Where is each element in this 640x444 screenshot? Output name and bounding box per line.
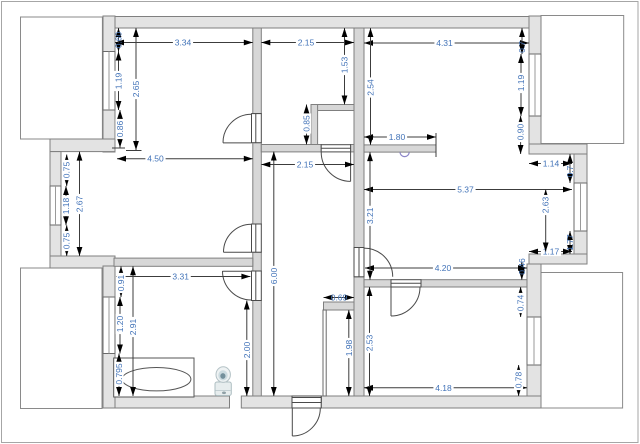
svg-text:3.31: 3.31 [172,272,189,282]
svg-text:3.21: 3.21 [365,207,375,224]
svg-text:2.67: 2.67 [75,195,85,212]
svg-text:0.85: 0.85 [302,115,312,132]
svg-text:0.7: 0.7 [565,165,575,177]
svg-text:1.14: 1.14 [543,159,560,169]
svg-text:6.00: 6.00 [269,267,279,284]
svg-text:5.37: 5.37 [457,185,474,195]
svg-text:3.34: 3.34 [175,38,192,48]
svg-text:4.31: 4.31 [436,38,453,48]
svg-text:2.00: 2.00 [242,341,252,358]
svg-text:0.78: 0.78 [514,371,524,388]
svg-text:0.75: 0.75 [62,232,72,249]
svg-text:1.18: 1.18 [61,197,71,214]
svg-text:2.53: 2.53 [365,334,375,351]
svg-text:4.18: 4.18 [435,383,452,393]
svg-text:1.98: 1.98 [344,339,354,356]
svg-text:0.46: 0.46 [517,258,527,275]
svg-text:2.65: 2.65 [131,80,141,97]
svg-text:1.19: 1.19 [516,74,526,91]
svg-text:1.53: 1.53 [340,56,350,73]
svg-text:1.20: 1.20 [115,315,125,332]
svg-text:0.91: 0.91 [116,274,126,291]
svg-text:2.54: 2.54 [366,79,376,96]
svg-text:0.90: 0.90 [516,123,526,140]
svg-text:2.91: 2.91 [128,318,138,335]
svg-text:2.15: 2.15 [297,160,314,170]
svg-text:0.74: 0.74 [516,294,526,311]
svg-text:0.7: 0.7 [517,41,527,53]
svg-text:1.19: 1.19 [114,72,124,89]
svg-text:2.63: 2.63 [541,196,551,213]
svg-text:0.60: 0.60 [114,31,124,48]
svg-text:1.77: 1.77 [565,234,575,251]
svg-text:0.75: 0.75 [62,161,72,178]
svg-text:4.50: 4.50 [147,154,164,164]
svg-text:0.69: 0.69 [331,293,348,303]
svg-text:4.20: 4.20 [435,263,452,273]
svg-text:0.795: 0.795 [114,363,124,385]
svg-text:2.15: 2.15 [298,38,315,48]
svg-text:1.80: 1.80 [389,132,406,142]
svg-text:0.86: 0.86 [115,120,125,137]
